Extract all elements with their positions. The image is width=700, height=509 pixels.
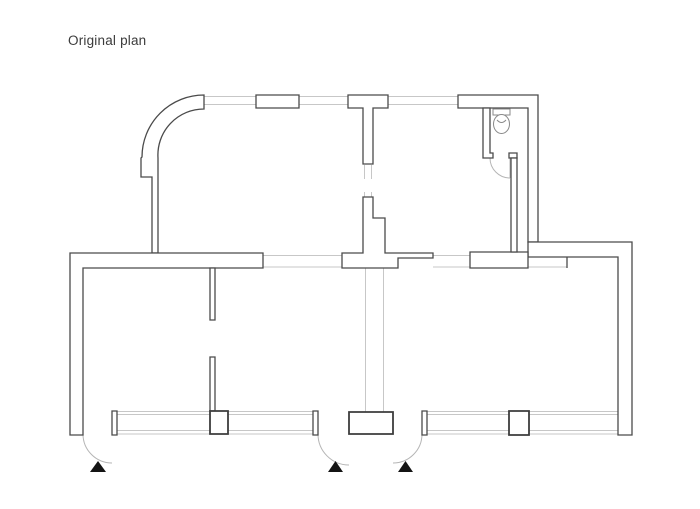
wall-mid-segment-right	[470, 252, 528, 268]
entrance-door-center-left-arc	[318, 434, 349, 465]
window-cap-left-b	[313, 411, 318, 435]
window-band-top-1	[204, 97, 256, 105]
wall-wc-door-jamb	[509, 153, 517, 158]
entrance-marker-triangle	[90, 461, 106, 472]
opening-mid-right	[433, 256, 470, 268]
wall-central-band	[342, 197, 433, 268]
window-pier-right	[509, 411, 529, 435]
wall-lower-left-block	[70, 253, 263, 435]
entrance-pier-central	[349, 412, 393, 434]
floor-plan	[0, 0, 700, 509]
window-cap-right	[422, 411, 427, 435]
window-cap-left-a	[112, 411, 117, 435]
entrance-marker-triangle	[328, 461, 343, 472]
entrance-door-center-right-arc	[393, 434, 422, 463]
wall-upper-left-corner	[141, 95, 204, 253]
toilet-bowl	[494, 115, 510, 134]
entrance-door-left-arc	[83, 434, 112, 463]
entrance-markers	[90, 461, 413, 472]
window-pier-left	[210, 411, 228, 434]
wall-partition-upper-stub	[210, 268, 215, 320]
opening-mid-left	[263, 256, 342, 268]
porch-duct-lines	[366, 268, 384, 412]
wall-top-t-segment	[348, 95, 388, 164]
window-band-top-2	[299, 97, 348, 105]
interior-walls	[112, 108, 529, 435]
wall-partition-lower-stub	[210, 357, 215, 411]
door-arcs	[83, 158, 510, 465]
wc-door-arc	[490, 158, 510, 178]
wall-wc-left	[483, 108, 493, 158]
window-band-top-3	[388, 97, 458, 105]
wall-right-block	[528, 242, 632, 435]
wall-top-pier	[256, 95, 299, 108]
toilet-icon	[493, 109, 510, 134]
opening-central-wall	[365, 165, 372, 197]
wall-wc-right	[511, 158, 517, 252]
